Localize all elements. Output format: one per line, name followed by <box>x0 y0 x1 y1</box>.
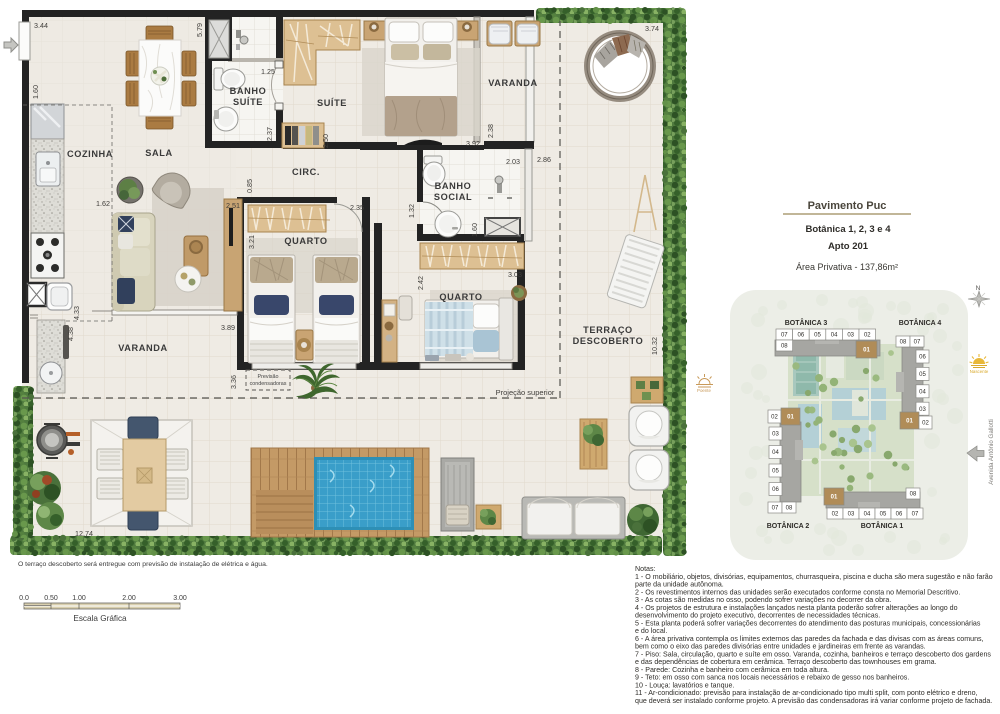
svg-text:que deverá ser instalado confo: que deverá ser instalado conforme projet… <box>635 697 992 705</box>
svg-text:04: 04 <box>831 333 838 339</box>
svg-text:Botânica 1, 2, 3 e 4: Botânica 1, 2, 3 e 4 <box>805 224 891 235</box>
svg-text:SUÍTE: SUÍTE <box>233 96 263 107</box>
svg-text:2.51: 2.51 <box>226 201 240 210</box>
svg-text:02: 02 <box>864 333 871 339</box>
svg-text:2.50: 2.50 <box>321 134 330 148</box>
svg-text:08: 08 <box>786 506 793 512</box>
svg-text:02: 02 <box>832 512 839 518</box>
svg-text:3.21: 3.21 <box>247 235 256 249</box>
svg-text:SUÍTE: SUÍTE <box>317 97 347 108</box>
svg-text:07: 07 <box>912 512 919 518</box>
svg-text:Projeção superior: Projeção superior <box>496 388 555 397</box>
svg-text:1.60: 1.60 <box>470 223 479 237</box>
svg-text:BANHO: BANHO <box>230 86 267 96</box>
svg-text:Pavimento Puc: Pavimento Puc <box>808 200 887 212</box>
svg-text:06: 06 <box>896 512 903 518</box>
svg-text:Poente: Poente <box>697 388 711 393</box>
svg-text:0.0: 0.0 <box>19 595 29 602</box>
svg-text:3.00: 3.00 <box>173 595 187 602</box>
svg-text:Nascente: Nascente <box>970 369 989 374</box>
svg-text:TERRAÇO: TERRAÇO <box>583 325 633 335</box>
svg-text:01: 01 <box>787 415 794 421</box>
svg-text:06: 06 <box>919 355 926 361</box>
svg-text:QUARTO: QUARTO <box>439 292 482 302</box>
svg-text:08: 08 <box>781 344 788 350</box>
svg-text:06: 06 <box>798 333 805 339</box>
svg-text:3.44: 3.44 <box>34 21 48 30</box>
svg-text:VARANDA: VARANDA <box>488 78 537 88</box>
svg-text:4.38: 4.38 <box>66 327 75 341</box>
svg-text:03: 03 <box>848 512 855 518</box>
svg-text:07: 07 <box>914 340 921 346</box>
svg-text:1.60: 1.60 <box>31 85 40 99</box>
svg-text:3.03: 3.03 <box>508 270 522 279</box>
svg-text:2.37: 2.37 <box>265 127 274 141</box>
svg-text:07: 07 <box>781 333 788 339</box>
svg-text:Previsão: Previsão <box>258 374 279 380</box>
svg-text:05: 05 <box>880 512 887 518</box>
svg-text:VARANDA: VARANDA <box>118 343 167 353</box>
svg-text:4.33: 4.33 <box>72 306 81 320</box>
svg-text:3.89: 3.89 <box>221 323 235 332</box>
svg-text:06: 06 <box>772 487 779 493</box>
svg-text:2.00: 2.00 <box>122 595 136 602</box>
svg-text:DESCOBERTO: DESCOBERTO <box>573 336 644 346</box>
svg-text:BOTÂNICA 1: BOTÂNICA 1 <box>861 521 904 530</box>
svg-text:condensadoras: condensadoras <box>250 381 287 387</box>
svg-text:02: 02 <box>922 421 929 427</box>
svg-text:CIRC.: CIRC. <box>292 167 320 177</box>
svg-text:0.85: 0.85 <box>245 179 254 193</box>
svg-text:1.25: 1.25 <box>261 67 275 76</box>
svg-text:05: 05 <box>814 333 821 339</box>
svg-text:SOCIAL: SOCIAL <box>434 192 472 202</box>
svg-text:BOTÂNICA 2: BOTÂNICA 2 <box>767 521 810 530</box>
svg-text:01: 01 <box>831 495 838 501</box>
svg-text:04: 04 <box>772 450 779 456</box>
svg-text:03: 03 <box>772 432 779 438</box>
svg-text:01: 01 <box>863 348 870 354</box>
svg-text:05: 05 <box>772 469 779 475</box>
svg-text:04: 04 <box>919 390 926 396</box>
svg-text:5.79: 5.79 <box>195 23 204 37</box>
svg-text:COZINHA: COZINHA <box>67 149 113 159</box>
svg-text:Avenida Antônio Gallotti: Avenida Antônio Gallotti <box>988 419 995 485</box>
svg-text:01: 01 <box>906 419 913 425</box>
svg-text:12.74: 12.74 <box>75 529 93 538</box>
svg-text:1.00: 1.00 <box>72 595 86 602</box>
svg-text:10.32: 10.32 <box>650 337 659 355</box>
svg-text:O terraço descoberto será entr: O terraço descoberto será entregue com p… <box>18 561 268 568</box>
svg-text:3.92: 3.92 <box>466 139 480 148</box>
svg-text:0.50: 0.50 <box>44 595 58 602</box>
svg-text:2.38: 2.38 <box>486 124 495 138</box>
svg-text:Apto 201: Apto 201 <box>828 241 869 252</box>
svg-text:2.42: 2.42 <box>416 276 425 290</box>
svg-text:08: 08 <box>900 340 907 346</box>
svg-text:QUARTO: QUARTO <box>284 236 327 246</box>
svg-text:Escala Gráfica: Escala Gráfica <box>73 614 127 623</box>
svg-text:07: 07 <box>772 506 779 512</box>
svg-text:N: N <box>976 285 981 292</box>
svg-text:BOTÂNICA 3: BOTÂNICA 3 <box>785 318 828 327</box>
svg-text:3.74: 3.74 <box>645 24 659 33</box>
svg-text:08: 08 <box>910 492 917 498</box>
svg-text:BANHO: BANHO <box>435 181 472 191</box>
svg-text:5 - Esta planta poderá sofrer: 5 - Esta planta poderá sofrer variações … <box>635 619 981 627</box>
svg-text:Área Privativa - 137,86m²: Área Privativa - 137,86m² <box>796 262 898 272</box>
svg-text:2.86: 2.86 <box>537 155 551 164</box>
svg-text:3.36: 3.36 <box>229 375 238 389</box>
svg-text:2.03: 2.03 <box>506 157 520 166</box>
svg-text:05: 05 <box>919 372 926 378</box>
svg-text:SALA: SALA <box>145 148 172 158</box>
svg-text:2.35: 2.35 <box>350 203 364 212</box>
svg-text:1.62: 1.62 <box>96 199 110 208</box>
svg-text:BOTÂNICA 4: BOTÂNICA 4 <box>899 318 942 327</box>
svg-text:1.32: 1.32 <box>407 204 416 218</box>
svg-text:02: 02 <box>771 415 778 421</box>
svg-text:03: 03 <box>919 407 926 413</box>
svg-text:03: 03 <box>847 333 854 339</box>
svg-text:04: 04 <box>864 512 871 518</box>
